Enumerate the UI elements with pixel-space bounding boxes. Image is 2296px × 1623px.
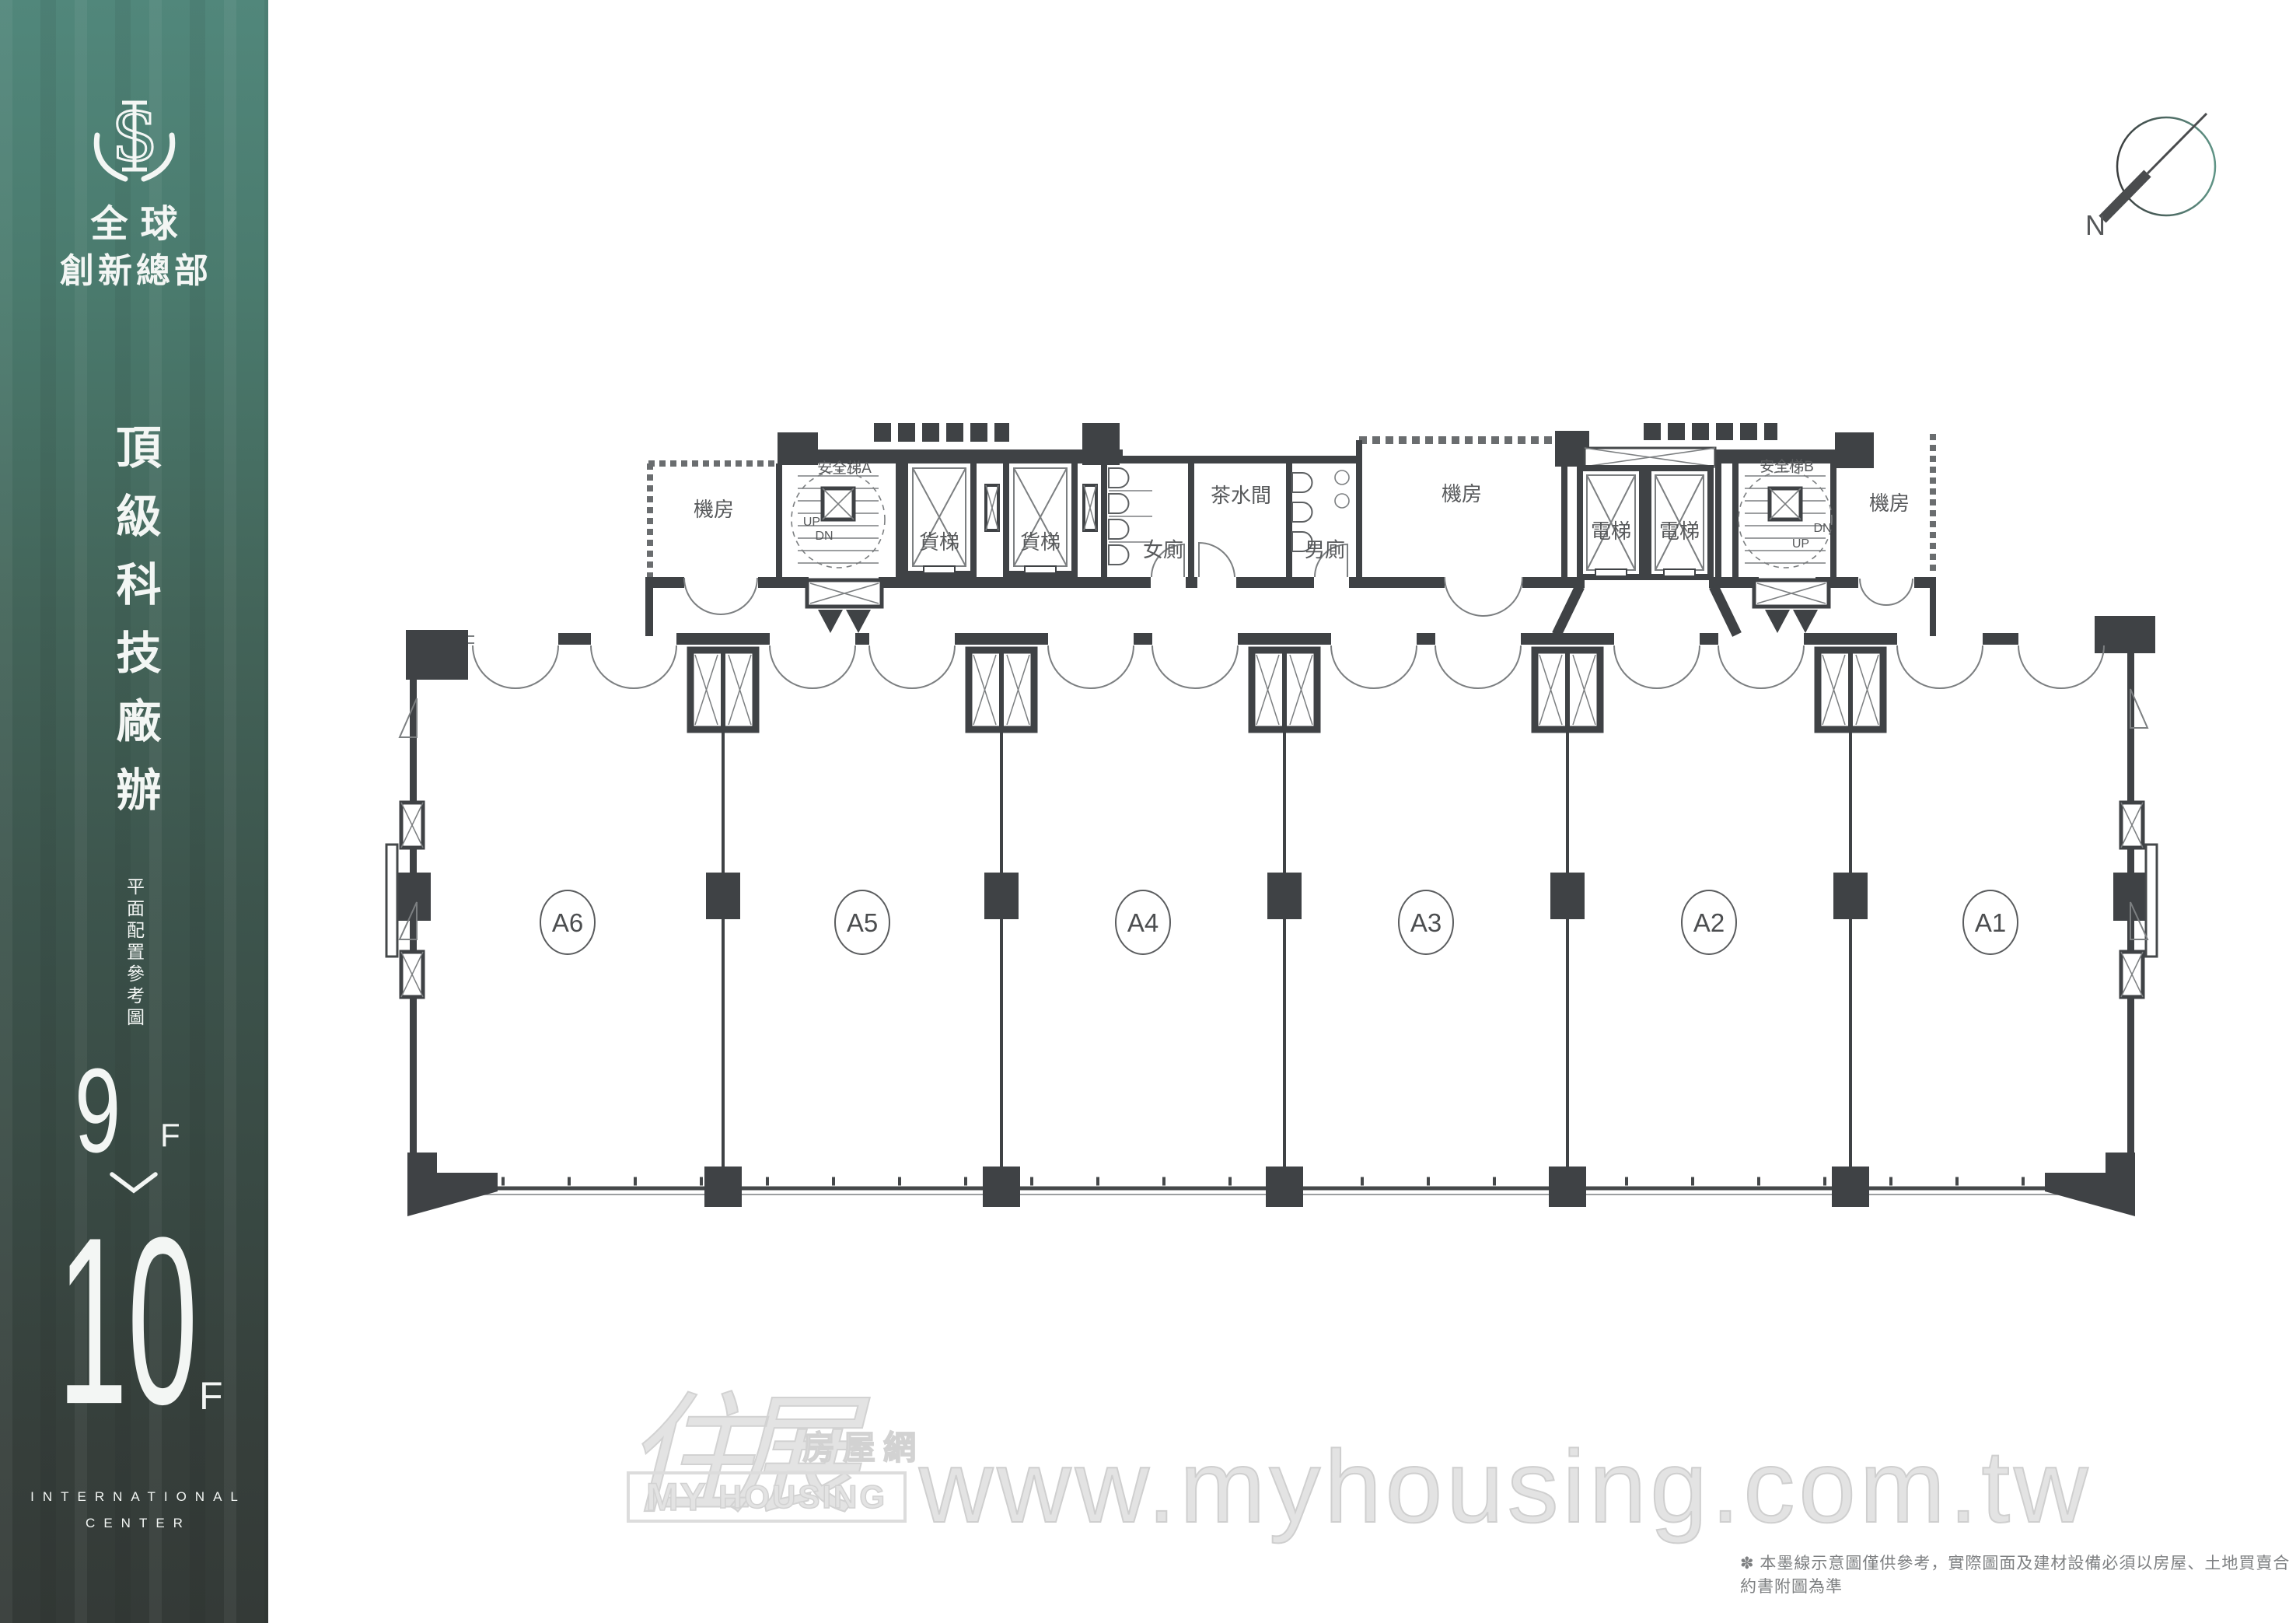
- right-vent-box: [2121, 803, 2143, 848]
- compass-north-label: N: [2085, 209, 2106, 241]
- divider-a3-a2: [1535, 650, 1600, 1207]
- svg-text:A3: A3: [1410, 908, 1442, 937]
- room-label-freight-2: 貨梯: [1020, 530, 1061, 554]
- stair-a-up: UP: [803, 516, 820, 529]
- unit-a3: A3: [1399, 890, 1453, 954]
- watermark-logo-en-word2: HOUSING: [718, 1478, 887, 1516]
- svg-text:A2: A2: [1693, 908, 1725, 937]
- disclaimer-note: ✽ 本墨線示意圖僅供參考，實際圖面及建材設備必須以房屋、土地買賣合約書附圖為準: [1740, 1551, 2296, 1597]
- svg-text:A5: A5: [847, 908, 878, 937]
- room-label-womens-toilet: 女廁: [1143, 538, 1183, 561]
- room-label-stair-b: 安全梯B: [1760, 458, 1814, 475]
- divider-a5-a4: [969, 650, 1034, 1207]
- stair-b-up: UP: [1792, 537, 1809, 551]
- unit-a6: A6: [540, 890, 595, 954]
- svg-text:A4: A4: [1127, 908, 1158, 937]
- stair-a-exit: [807, 580, 882, 633]
- room-label-machine-room-left: 機房: [694, 498, 734, 521]
- room-label-pantry: 茶水間: [1211, 484, 1271, 507]
- room-label-mens-toilet: 男廁: [1305, 538, 1345, 561]
- watermark-logo-en-word1: MY: [646, 1474, 708, 1520]
- unit-a1: A1: [1963, 890, 2018, 954]
- watermark-url: www.myhousing.com.tw: [919, 1428, 2092, 1545]
- watermark-logo-zh-sub: 房屋網: [802, 1422, 924, 1469]
- watermark-logo-en: MY HOUSING: [627, 1471, 907, 1523]
- svg-text:A6: A6: [552, 908, 583, 937]
- unit-a2: A2: [1682, 890, 1736, 954]
- divider-a6-a5: [690, 650, 756, 1207]
- svg-text:A1: A1: [1975, 908, 2006, 937]
- freight-elevator-2: [1006, 460, 1075, 574]
- room-label-stair-a: 安全梯A: [817, 460, 872, 477]
- room-label-machine-room-right: 機房: [1869, 491, 1910, 515]
- right-vent-box: [2121, 952, 2143, 997]
- room-label-freight-1: 貨梯: [919, 530, 959, 554]
- floor-plan: N: [0, 0, 2296, 1623]
- left-vent-box: [401, 803, 423, 848]
- unit-a5: A5: [835, 890, 889, 954]
- stair-b-flight: [1739, 471, 1832, 568]
- freight-elevator-1: [905, 460, 973, 574]
- stair-b-dn: DN: [1813, 522, 1831, 535]
- service-core: 機房 安全梯A UP DN 貨梯 貨梯 女廁 茶水間 男廁 機房 電梯 電梯 安…: [645, 423, 1936, 636]
- room-label-elevator-2: 電梯: [1659, 519, 1700, 543]
- compass: N: [2085, 114, 2215, 241]
- left-vent-box: [401, 952, 423, 997]
- stair-b-exit: [1754, 580, 1829, 633]
- room-label-elevator-1: 電梯: [1591, 519, 1631, 543]
- divider-a4-a3: [1252, 650, 1317, 1207]
- stair-a-dn: DN: [815, 530, 833, 543]
- room-label-machine-room-center: 機房: [1442, 482, 1482, 505]
- unit-a4: A4: [1116, 890, 1170, 954]
- divider-a2-a1: [1818, 650, 1883, 1207]
